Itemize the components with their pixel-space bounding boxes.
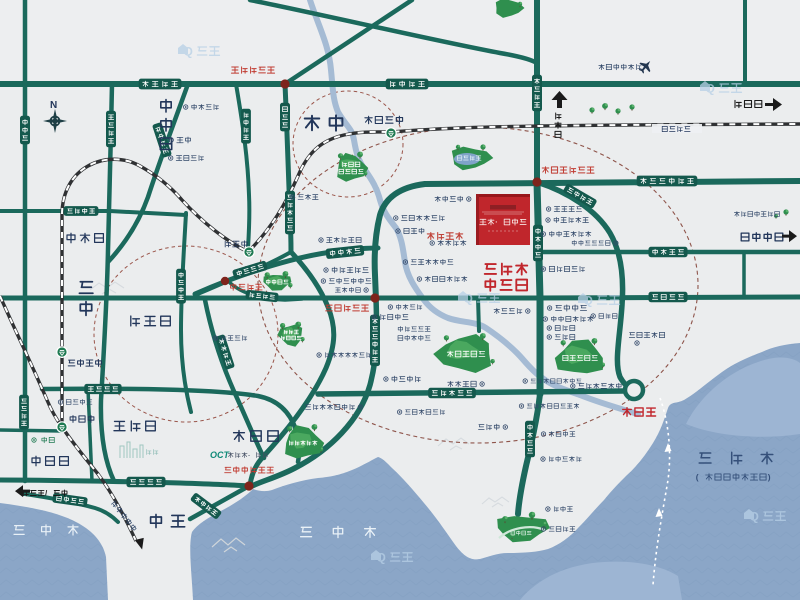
svg-text:Q: Q xyxy=(377,550,386,564)
svg-text:): ) xyxy=(768,472,771,482)
svg-text:·: · xyxy=(495,218,498,227)
svg-text:Q: Q xyxy=(584,293,593,307)
svg-text:N: N xyxy=(50,100,57,111)
svg-text:Q: Q xyxy=(706,81,715,95)
svg-text:Q: Q xyxy=(464,291,473,305)
svg-text:(: ( xyxy=(696,472,699,482)
svg-text:·: · xyxy=(248,452,250,459)
svg-text:Q: Q xyxy=(750,509,759,523)
svg-text:OCT: OCT xyxy=(210,450,231,460)
svg-text:Q: Q xyxy=(184,44,193,58)
